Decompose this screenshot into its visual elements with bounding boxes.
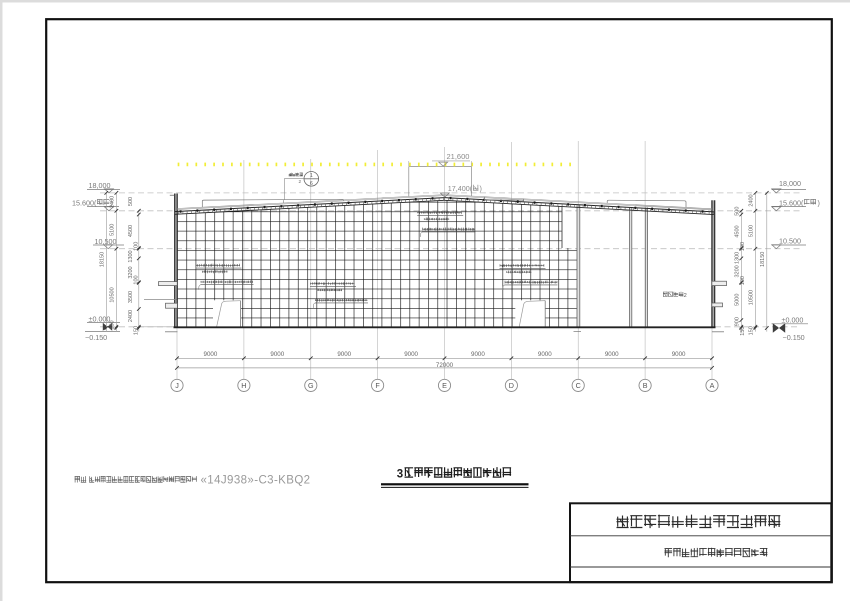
svg-text:18150: 18150	[760, 252, 766, 267]
svg-text:17,400(: 17,400(	[448, 184, 473, 193]
svg-text:3: 3	[397, 468, 403, 480]
svg-text:«14J938»-C3-KBQ2: «14J938»-C3-KBQ2	[201, 475, 311, 487]
svg-text:100: 100	[740, 242, 746, 251]
svg-text:18,000: 18,000	[779, 179, 801, 188]
svg-text:H: H	[241, 381, 246, 390]
svg-text:9000: 9000	[337, 351, 351, 358]
svg-text:100: 100	[133, 275, 139, 284]
svg-text:500: 500	[734, 207, 740, 216]
svg-text:2400: 2400	[128, 310, 134, 322]
svg-text:±0.000: ±0.000	[782, 316, 804, 325]
svg-text:5000: 5000	[734, 294, 740, 306]
svg-text:9000: 9000	[538, 351, 552, 358]
svg-text:500: 500	[128, 197, 134, 206]
svg-text:21,600: 21,600	[447, 152, 470, 161]
svg-text:150: 150	[749, 326, 755, 335]
svg-text:2: 2	[684, 293, 687, 299]
svg-text:F: F	[375, 381, 380, 390]
svg-text:150: 150	[133, 326, 139, 335]
svg-text:10.500: 10.500	[779, 237, 801, 246]
svg-text:900: 900	[734, 317, 740, 326]
svg-text:1: 1	[310, 173, 313, 179]
svg-text:9000: 9000	[471, 351, 485, 358]
svg-text:−0.150: −0.150	[85, 333, 107, 342]
svg-text:2400: 2400	[749, 194, 755, 206]
svg-text:18150: 18150	[100, 252, 106, 267]
svg-text:3200: 3200	[734, 265, 740, 277]
svg-text:150: 150	[110, 320, 116, 329]
svg-text:C: C	[576, 381, 581, 390]
svg-text:10500: 10500	[110, 287, 116, 302]
svg-text:100: 100	[740, 276, 746, 285]
svg-text:J: J	[175, 381, 179, 390]
svg-text:G: G	[308, 381, 314, 390]
svg-text:9000: 9000	[605, 351, 619, 358]
svg-text:±0.000: ±0.000	[89, 314, 111, 323]
svg-text:100: 100	[133, 242, 139, 251]
svg-text:10500: 10500	[749, 290, 755, 305]
svg-text:2400: 2400	[110, 196, 116, 208]
svg-text:9000: 9000	[672, 351, 686, 358]
svg-text:E: E	[442, 381, 447, 390]
svg-text:3500: 3500	[128, 291, 134, 303]
svg-text:D: D	[509, 381, 514, 390]
svg-text:9000: 9000	[204, 351, 218, 358]
svg-text:−0.150: −0.150	[783, 333, 805, 342]
svg-text:): )	[480, 184, 482, 193]
svg-text:6: 6	[310, 181, 313, 187]
svg-text:2: 2	[299, 179, 302, 184]
svg-text:1300: 1300	[128, 250, 134, 262]
svg-text:5100: 5100	[749, 225, 755, 237]
svg-text:1300: 1300	[734, 252, 740, 264]
svg-text:9000: 9000	[404, 351, 418, 358]
svg-text:B: B	[643, 381, 648, 390]
svg-text:4500: 4500	[128, 225, 134, 237]
svg-text:A: A	[710, 381, 715, 390]
svg-text:5100: 5100	[110, 224, 116, 236]
svg-text:9000: 9000	[270, 351, 284, 358]
svg-text:72000: 72000	[436, 362, 454, 369]
svg-text:): )	[818, 198, 820, 207]
svg-text:4500: 4500	[734, 225, 740, 237]
svg-text:150: 150	[740, 327, 746, 336]
